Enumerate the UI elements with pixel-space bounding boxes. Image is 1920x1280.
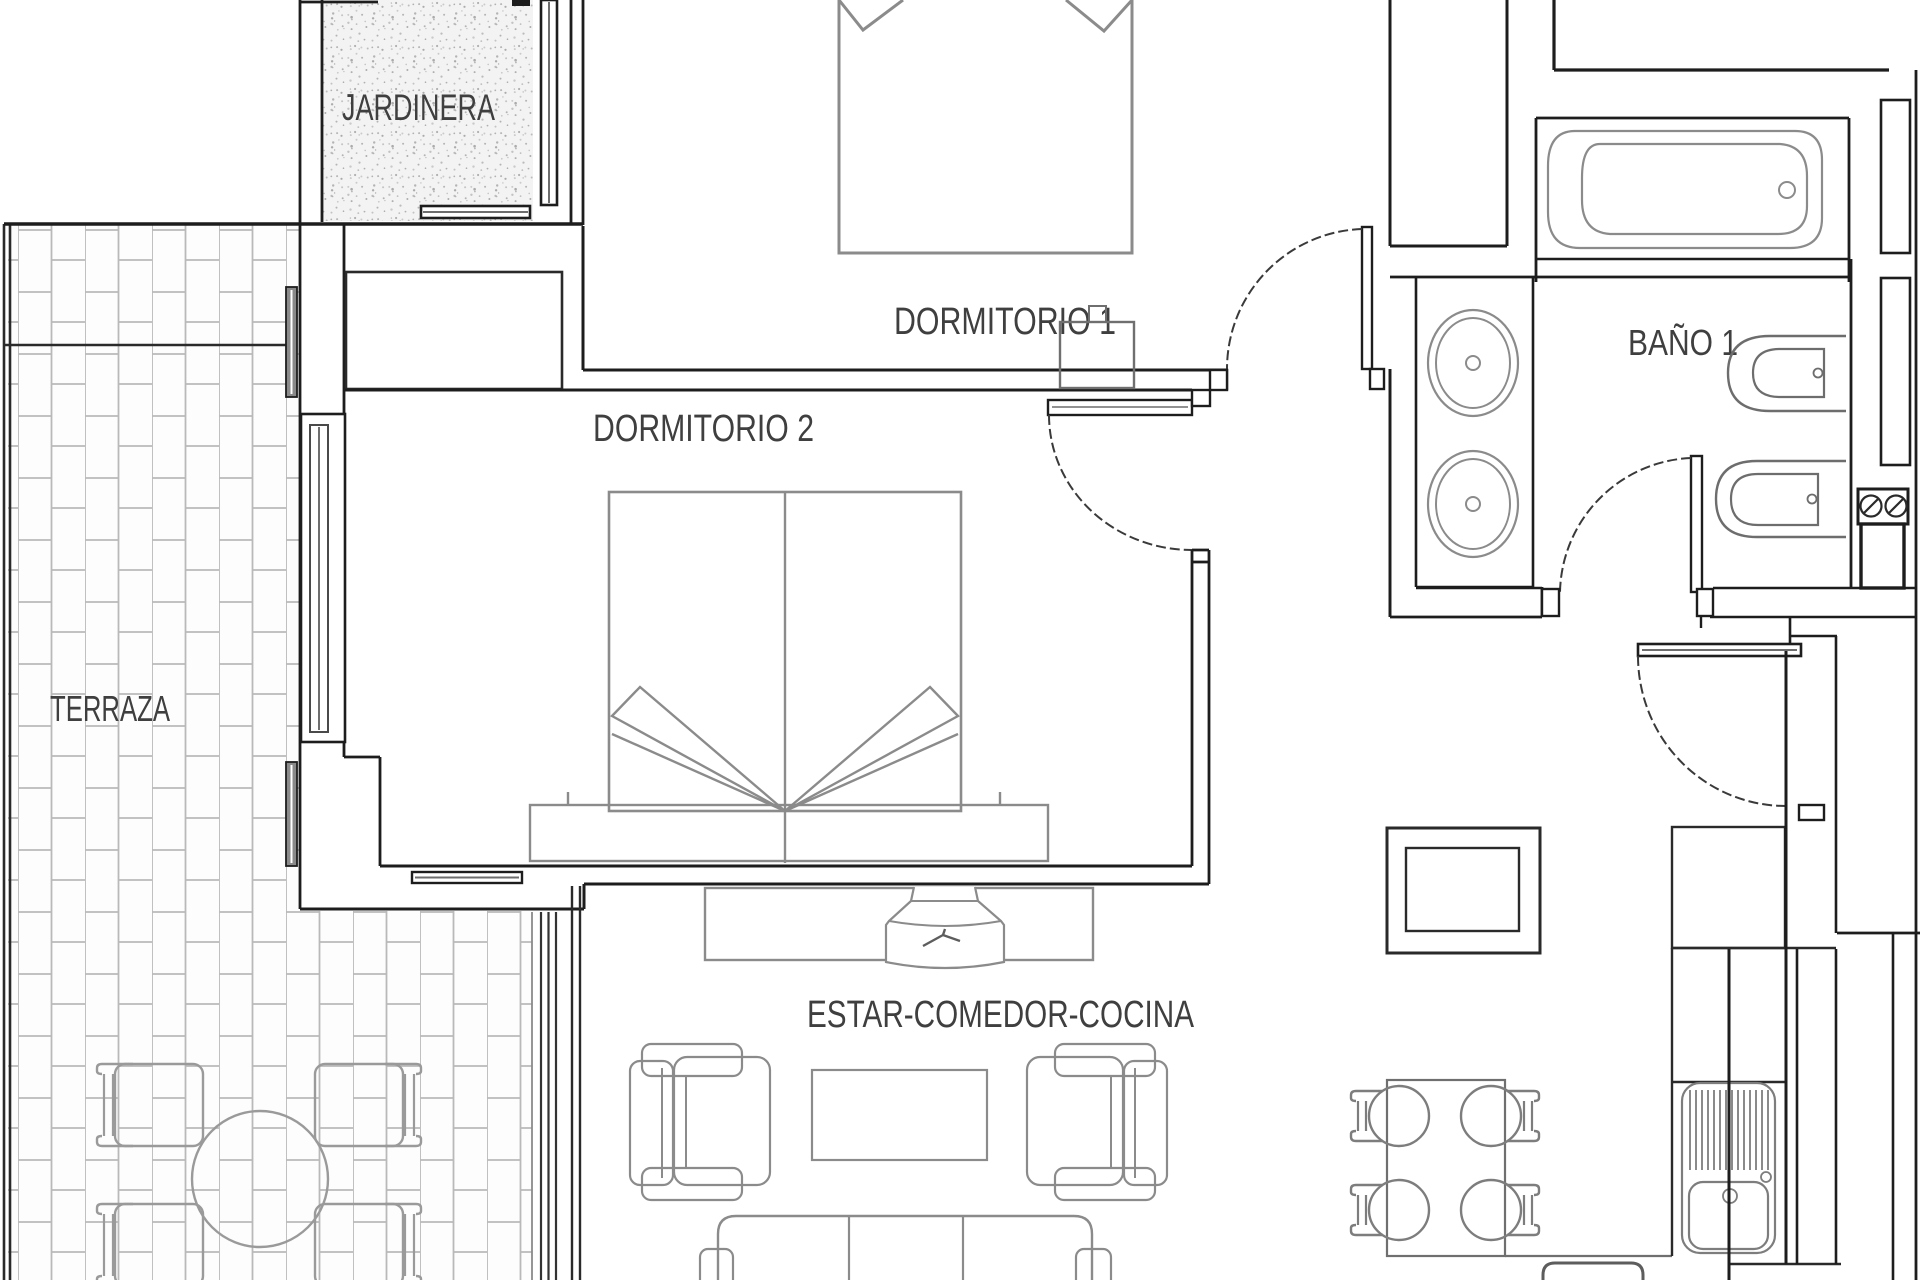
- svg-text:BAÑO 1: BAÑO 1: [1628, 322, 1738, 363]
- svg-text:TERRAZA: TERRAZA: [50, 688, 170, 729]
- svg-text:DORMITORIO 2: DORMITORIO 2: [593, 408, 814, 450]
- svg-text:JARDINERA: JARDINERA: [342, 87, 495, 128]
- svg-text:ESTAR-COMEDOR-COCINA: ESTAR-COMEDOR-COCINA: [807, 994, 1195, 1036]
